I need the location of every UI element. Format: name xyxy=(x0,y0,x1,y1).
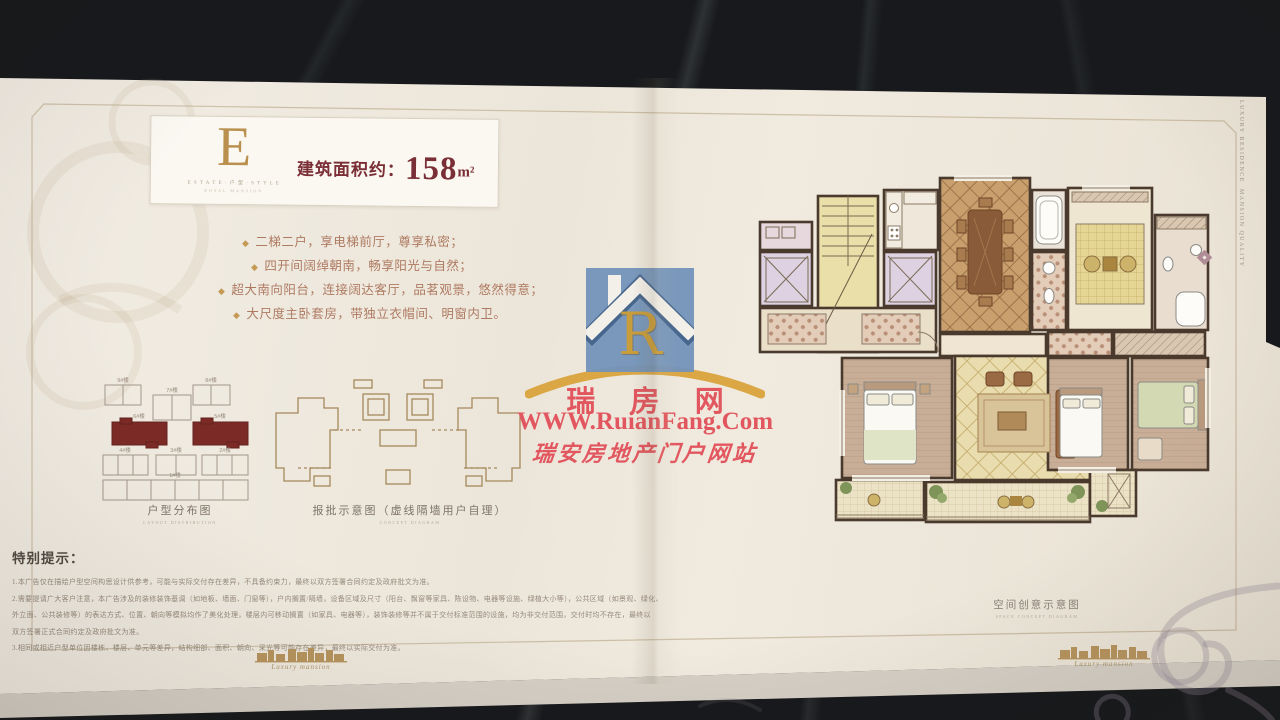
highlighted-buildings xyxy=(112,418,248,448)
building-label: 8#楼 xyxy=(205,376,217,384)
unit-letter-subcaption: ROYAL MANSION xyxy=(161,187,307,194)
building-distribution-map: 9#楼 7#楼 8#楼 6#楼 5#楼 4#楼 3#楼 2#楼 1#楼 xyxy=(90,372,265,505)
feature-item: ◆二梯二户，享电梯前厅，尊享私密； xyxy=(242,231,542,255)
diamond-bullet-icon: ◆ xyxy=(251,262,258,272)
floorplan-caption: 空间创意示意图 SPACE CONCEPT DIAGRAM xyxy=(962,597,1112,619)
skyline-ornament-left: Luxury mansion xyxy=(255,645,347,671)
diamond-bullet-icon: ◆ xyxy=(218,286,225,296)
building-label: 9#楼 xyxy=(117,376,129,384)
side-vertical-text: LUXURY RESIDENCE MANSION QUALITY xyxy=(1237,100,1245,268)
building-label: 6#楼 xyxy=(133,412,145,420)
notice-title: 特别提示： xyxy=(12,547,667,567)
building-label: 7#楼 xyxy=(166,386,178,394)
brochure-photo: E E S T A T E · 户 型 · S T Y L E ROYAL MA… xyxy=(0,0,1280,720)
notice-line: 双方签署正式合同约定及政府批文为准。 xyxy=(12,624,667,641)
unit-card: E E S T A T E · 户 型 · S T Y L E ROYAL MA… xyxy=(150,115,500,208)
skyline-ornament-right: Luxury mansion xyxy=(1058,642,1150,668)
notice-line: 外立面、公共装修等）的表达方式、位置、朝向等模拟均作了美化处理，楼层内可移动搁置… xyxy=(12,607,667,624)
floor-plan xyxy=(752,168,1222,528)
diamond-bullet-icon: ◆ xyxy=(242,238,249,248)
feature-list: ◆二梯二户，享电梯前厅，尊享私密； ◆四开间阔绰朝南，畅享阳光与自然； ◆超大南… xyxy=(212,231,542,327)
unit-letter: E xyxy=(175,114,294,179)
diamond-bullet-icon: ◆ xyxy=(233,310,240,320)
building-label: 2#楼 xyxy=(219,446,231,454)
approval-caption: 报批示意图（虚线隔墙用户自理） CONCEPT DIAGRAM xyxy=(295,502,525,525)
skyline-icon xyxy=(1058,642,1150,660)
building-label: 3#楼 xyxy=(170,446,182,454)
notice-line: 1.本广告仅在描绘户型空间构思设计供参考，可能与实际交付存在差异，不具备约束力，… xyxy=(12,574,667,591)
skyline-icon xyxy=(255,645,347,663)
special-notice: 特别提示： 1.本广告仅在描绘户型空间构思设计供参考，可能与实际交付存在差异，不… xyxy=(12,547,667,657)
feature-item: ◆四开间阔绰朝南，畅享阳光与自然； xyxy=(251,255,542,279)
area-label: 建筑面积约： xyxy=(297,160,405,180)
area-unit: m² xyxy=(457,164,474,180)
building-label: 4#楼 xyxy=(119,446,131,454)
building-label: 1#楼 xyxy=(169,471,181,479)
building-label: 5#楼 xyxy=(214,412,226,420)
notice-line: 2.需要提请广大客户注意，本广告涉及的装修装饰基调（如地板、墙面、门窗等），户内… xyxy=(12,591,667,608)
approval-sketch xyxy=(268,378,528,500)
unit-area: 建筑面积约：158m² xyxy=(297,150,493,189)
unit-letter-caption: E S T A T E · 户 型 · S T Y L E xyxy=(161,178,307,187)
feature-item: ◆超大南向阳台，连接阔达客厅，品茗观景，悠然得意； xyxy=(218,279,542,303)
distribution-caption: 户型分布图 LAYOUT DISTRIBUTION xyxy=(110,502,250,525)
feature-item: ◆大尺度主卧套房，带独立衣帽间、明窗内卫。 xyxy=(233,303,542,327)
area-value: 158 xyxy=(405,151,458,188)
